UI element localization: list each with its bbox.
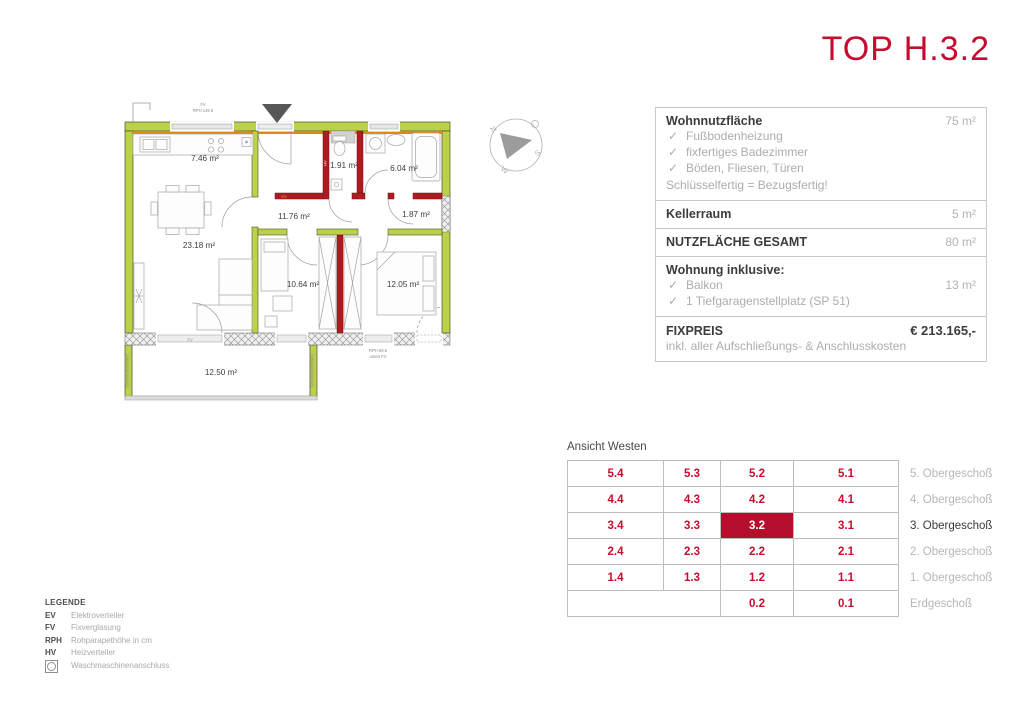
floor-plan-svg: Schallschutzwand Schallschutzwand FV RPH…	[110, 95, 550, 410]
bath-sink	[387, 135, 405, 146]
section-fixpreis: FIXPREIS € 213.165,- inkl. aller Aufschl…	[656, 316, 986, 361]
unit-cell-3-4[interactable]: 3.4	[568, 513, 664, 539]
unit-cell-1-3[interactable]: 1.3	[664, 565, 721, 591]
unit-cell-4-1[interactable]: 4.1	[794, 487, 899, 513]
unit-cell-2-2[interactable]: 2.2	[721, 539, 794, 565]
section-label: Wohnung inklusive:	[666, 263, 785, 277]
rph-label-top: RPH 149.5	[193, 108, 214, 113]
section-wohnnutzflaeche: Wohnnutzfläche 75 m² ✓Fußbodenheizung ✓f…	[656, 108, 986, 200]
info-panel: Wohnnutzfläche 75 m² ✓Fußbodenheizung ✓f…	[655, 107, 987, 362]
check-icon: ✓	[666, 277, 686, 293]
legend: LEGENDE EV Elektroverteiler FV Fixvergla…	[45, 597, 169, 673]
table-row: 3.4 3.3 3.2 3.1 3. Obergeschoß	[568, 513, 993, 539]
unit-cell-5-2[interactable]: 5.2	[721, 461, 794, 487]
section-kellerraum: Kellerraum 5 m²	[656, 200, 986, 228]
legend-key: RPH	[45, 635, 71, 648]
floor-label: 2. Obergeschoß	[899, 539, 993, 565]
table-row: 2.4 2.3 2.2 2.1 2. Obergeschoß	[568, 539, 993, 565]
floor-label: 5. Obergeschoß	[899, 461, 993, 487]
compass-o-glyph	[532, 121, 539, 128]
feature-item: Böden, Fliesen, Türen	[686, 160, 804, 176]
price-value: € 213.165,-	[910, 323, 976, 338]
unit-cell-4-4[interactable]: 4.4	[568, 487, 664, 513]
section-note: Schlüsselfertig = Bezugsfertig!	[666, 177, 976, 193]
unit-cell-0-1[interactable]: 0.1	[794, 591, 899, 617]
neighbour-wall-line	[133, 103, 150, 122]
hv-label: HV	[323, 160, 328, 166]
feature-item: fixfertiges Badezimmer	[686, 144, 808, 160]
unit-cell-empty	[568, 591, 721, 617]
unit-grid-section: Ansicht Westen 5.4 5.3 5.2 5.1 5. Oberge…	[567, 441, 993, 617]
floor-label: 4. Obergeschoß	[899, 487, 993, 513]
floor-label: 1. Obergeschoß	[899, 565, 993, 591]
washing-machine-icon	[45, 660, 58, 673]
rph-label-bottom-2: unten FV	[370, 354, 387, 359]
check-icon: ✓	[666, 144, 686, 160]
unit-cell-2-4[interactable]: 2.4	[568, 539, 664, 565]
wc-sink	[331, 179, 342, 190]
kitchen-window	[172, 124, 232, 129]
bath-area-label: 6.04 m²	[390, 164, 418, 173]
unit-cell-3-1[interactable]: 3.1	[794, 513, 899, 539]
ev-label: EV	[281, 194, 287, 199]
legend-text: Heizverteiler	[71, 647, 115, 660]
unit-cell-0-2[interactable]: 0.2	[721, 591, 794, 617]
check-icon: ✓	[666, 128, 686, 144]
storage-area-label: 1.87 m²	[402, 210, 430, 219]
table-row: 0.2 0.1 Erdgeschoß	[568, 591, 993, 617]
soundwall-label-left: Schallschutzwand	[125, 354, 130, 388]
floor-label: Erdgeschoß	[899, 591, 993, 617]
balcony-area-label: 12.50 m²	[205, 368, 238, 377]
feature-item: Balkon	[686, 277, 723, 293]
unit-cell-5-3[interactable]: 5.3	[664, 461, 721, 487]
fv-label-top: FV	[200, 102, 206, 107]
section-wohnung-inklusive: Wohnung inklusive: ✓Balkon 13 m² ✓1 Tief…	[656, 256, 986, 316]
bath-window	[370, 124, 398, 129]
section-label: Kellerraum	[666, 207, 731, 221]
svg-text:N: N	[488, 124, 498, 134]
washing-machine	[366, 134, 385, 153]
list-item: RPH Rohparapethöhe in cm	[45, 635, 169, 648]
section-value: 5 m²	[952, 207, 976, 221]
hall-area-label: 11.76 m²	[278, 212, 310, 221]
floor-plan: Schallschutzwand Schallschutzwand FV RPH…	[110, 95, 550, 415]
legend-title: LEGENDE	[45, 597, 169, 610]
section-note: inkl. aller Aufschließungs- & Anschlussk…	[666, 338, 976, 354]
list-item: FV Fixverglasung	[45, 622, 169, 635]
section-label: FIXPREIS	[666, 324, 723, 338]
child-area-label: 10.64 m²	[287, 280, 320, 289]
check-icon: ✓	[666, 160, 686, 176]
legend-key: EV	[45, 610, 71, 623]
unit-cell-1-4[interactable]: 1.4	[568, 565, 664, 591]
feature-item: Fußbodenheizung	[686, 128, 783, 144]
section-value: 80 m²	[945, 235, 976, 249]
table-row: 1.4 1.3 1.2 1.1 1. Obergeschoß	[568, 565, 993, 591]
legend-key: FV	[45, 622, 71, 635]
unit-cell-4-3[interactable]: 4.3	[664, 487, 721, 513]
north-arrow	[500, 133, 532, 159]
unit-cell-1-1[interactable]: 1.1	[794, 565, 899, 591]
legend-key: HV	[45, 647, 71, 660]
rph-label-bottom: RPH 89.5	[369, 348, 388, 353]
legend-text: Rohparapethöhe in cm	[71, 635, 152, 648]
unit-cell-5-4[interactable]: 5.4	[568, 461, 664, 487]
unit-cell-2-3[interactable]: 2.3	[664, 539, 721, 565]
unit-cell-3-3[interactable]: 3.3	[664, 513, 721, 539]
table-row: 5.4 5.3 5.2 5.1 5. Obergeschoß	[568, 461, 993, 487]
toilet	[334, 142, 345, 156]
section-value: 75 m²	[945, 114, 976, 128]
list-item: Waschmaschinenanschluss	[45, 660, 169, 673]
dining-table	[158, 192, 204, 228]
bedroom-area-label: 12.05 m²	[387, 280, 420, 289]
fv-label-balcony-door: FV	[187, 337, 193, 342]
kitchen-area-label: 7.46 m²	[191, 154, 219, 163]
section-label: NUTZFLÄCHE GESAMT	[666, 235, 807, 249]
toilet-tank	[333, 136, 346, 141]
unit-cell-5-1[interactable]: 5.1	[794, 461, 899, 487]
entrance-marker-icon	[262, 104, 292, 123]
legend-text: Fixverglasung	[71, 622, 121, 635]
section-nutzflaeche-gesamt: NUTZFLÄCHE GESAMT 80 m²	[656, 228, 986, 256]
soundwall-label-right: Schallschutzwand	[310, 354, 315, 388]
unit-cell-3-2-active[interactable]: 3.2	[721, 513, 794, 539]
list-item: HV Heizverteiler	[45, 647, 169, 660]
feature-item: 1 Tiefgaragenstellplatz (SP 51)	[686, 293, 850, 309]
unit-cell-2-1[interactable]: 2.1	[794, 539, 899, 565]
unit-grid: 5.4 5.3 5.2 5.1 5. Obergeschoß 4.4 4.3 4…	[567, 460, 993, 617]
section-label: Wohnnutzfläche	[666, 114, 762, 128]
table-row: 4.4 4.3 4.2 4.1 4. Obergeschoß	[568, 487, 993, 513]
unit-cell-1-2[interactable]: 1.2	[721, 565, 794, 591]
page: TOP H.3.2 Schallschutzwand Schallschutzw…	[0, 0, 1024, 724]
list-item: EV Elektroverteiler	[45, 610, 169, 623]
check-icon: ✓	[666, 293, 686, 309]
legend-text: Waschmaschinenanschluss	[71, 660, 169, 673]
unit-cell-4-2[interactable]: 4.2	[721, 487, 794, 513]
legend-text: Elektroverteiler	[71, 610, 124, 623]
living-area-label: 23.18 m²	[183, 241, 216, 250]
floor-label-current: 3. Obergeschoß	[899, 513, 993, 539]
grid-caption: Ansicht Westen	[567, 441, 993, 453]
page-title: TOP H.3.2	[822, 30, 990, 69]
wc-area-label: 1.91 m²	[330, 161, 358, 170]
entrance-door	[258, 124, 292, 129]
balkon-value: 13 m²	[945, 277, 976, 293]
compass-icon: N S W	[488, 119, 542, 176]
